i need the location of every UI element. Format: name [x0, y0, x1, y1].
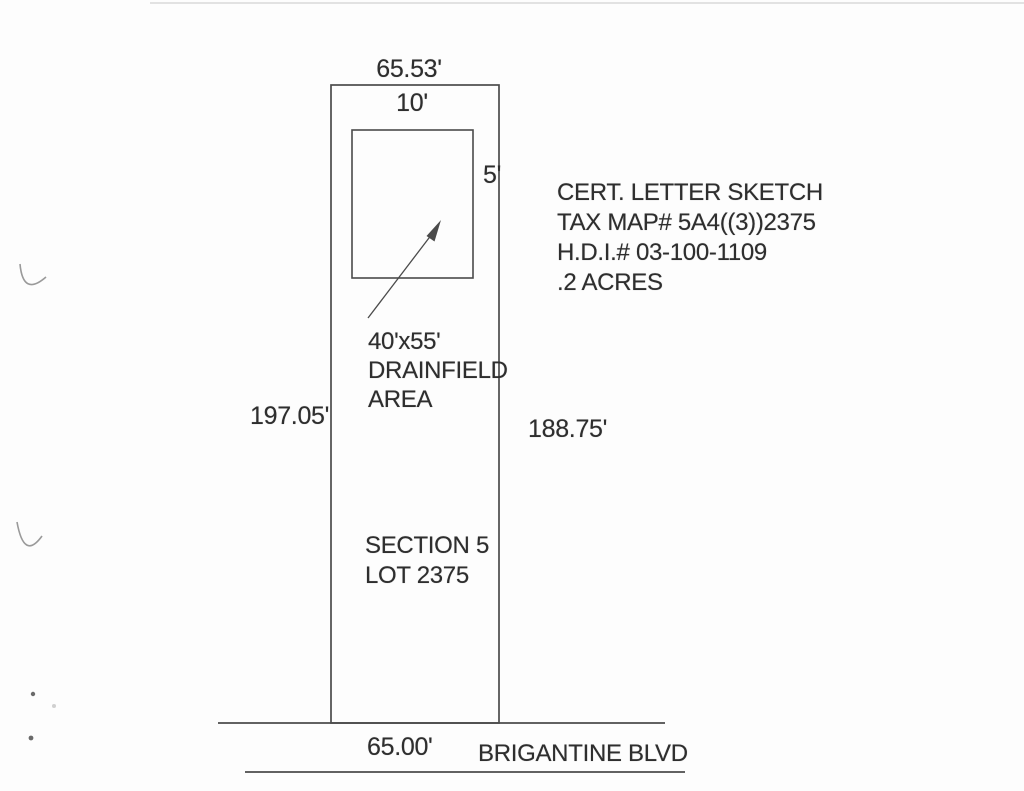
hole-punch-artifact-bottom [17, 522, 42, 546]
drainfield-leader-arrow [368, 220, 441, 318]
lot-number: LOT 2375 [365, 561, 489, 591]
lot-right-depth-dimension: 188.75' [528, 416, 607, 444]
drainfield-size: 40'x55' [368, 327, 508, 356]
scanned-sketch-page: 65.53' 10' 5' 197.05' 188.75' 65.00' CER… [0, 0, 1024, 791]
drainfield-height-dimension: 5' [483, 162, 501, 190]
arrow-shaft [368, 234, 432, 318]
dust-speck [29, 736, 34, 741]
cert-letter-block: CERT. LETTER SKETCH TAX MAP# 5A4((3))237… [557, 178, 823, 298]
hdi-number: H.D.I.# 03-100-1109 [557, 238, 823, 268]
hole-punch-artifact-top [20, 264, 46, 285]
section-number: SECTION 5 [365, 531, 489, 561]
dust-speck [52, 704, 56, 708]
tax-map-number: TAX MAP# 5A4((3))2375 [557, 208, 823, 238]
drainfield-area-label: 40'x55' DRAINFIELD AREA [368, 327, 508, 414]
sketch-linework [0, 0, 1024, 791]
section-lot-label: SECTION 5 LOT 2375 [365, 531, 489, 591]
dust-speck [31, 692, 35, 696]
acreage: .2 ACRES [557, 268, 823, 298]
lot-top-width-dimension: 65.53' [376, 56, 442, 84]
drainfield-rect [352, 130, 473, 278]
drainfield-word: DRAINFIELD [368, 356, 508, 385]
lot-left-depth-dimension: 197.05' [250, 403, 329, 431]
drainfield-width-dimension: 10' [396, 90, 428, 118]
lot-bottom-width-dimension: 65.00' [367, 734, 433, 762]
cert-title: CERT. LETTER SKETCH [557, 178, 823, 208]
area-word: AREA [368, 385, 508, 414]
road-name-label: BRIGANTINE BLVD [478, 740, 688, 768]
